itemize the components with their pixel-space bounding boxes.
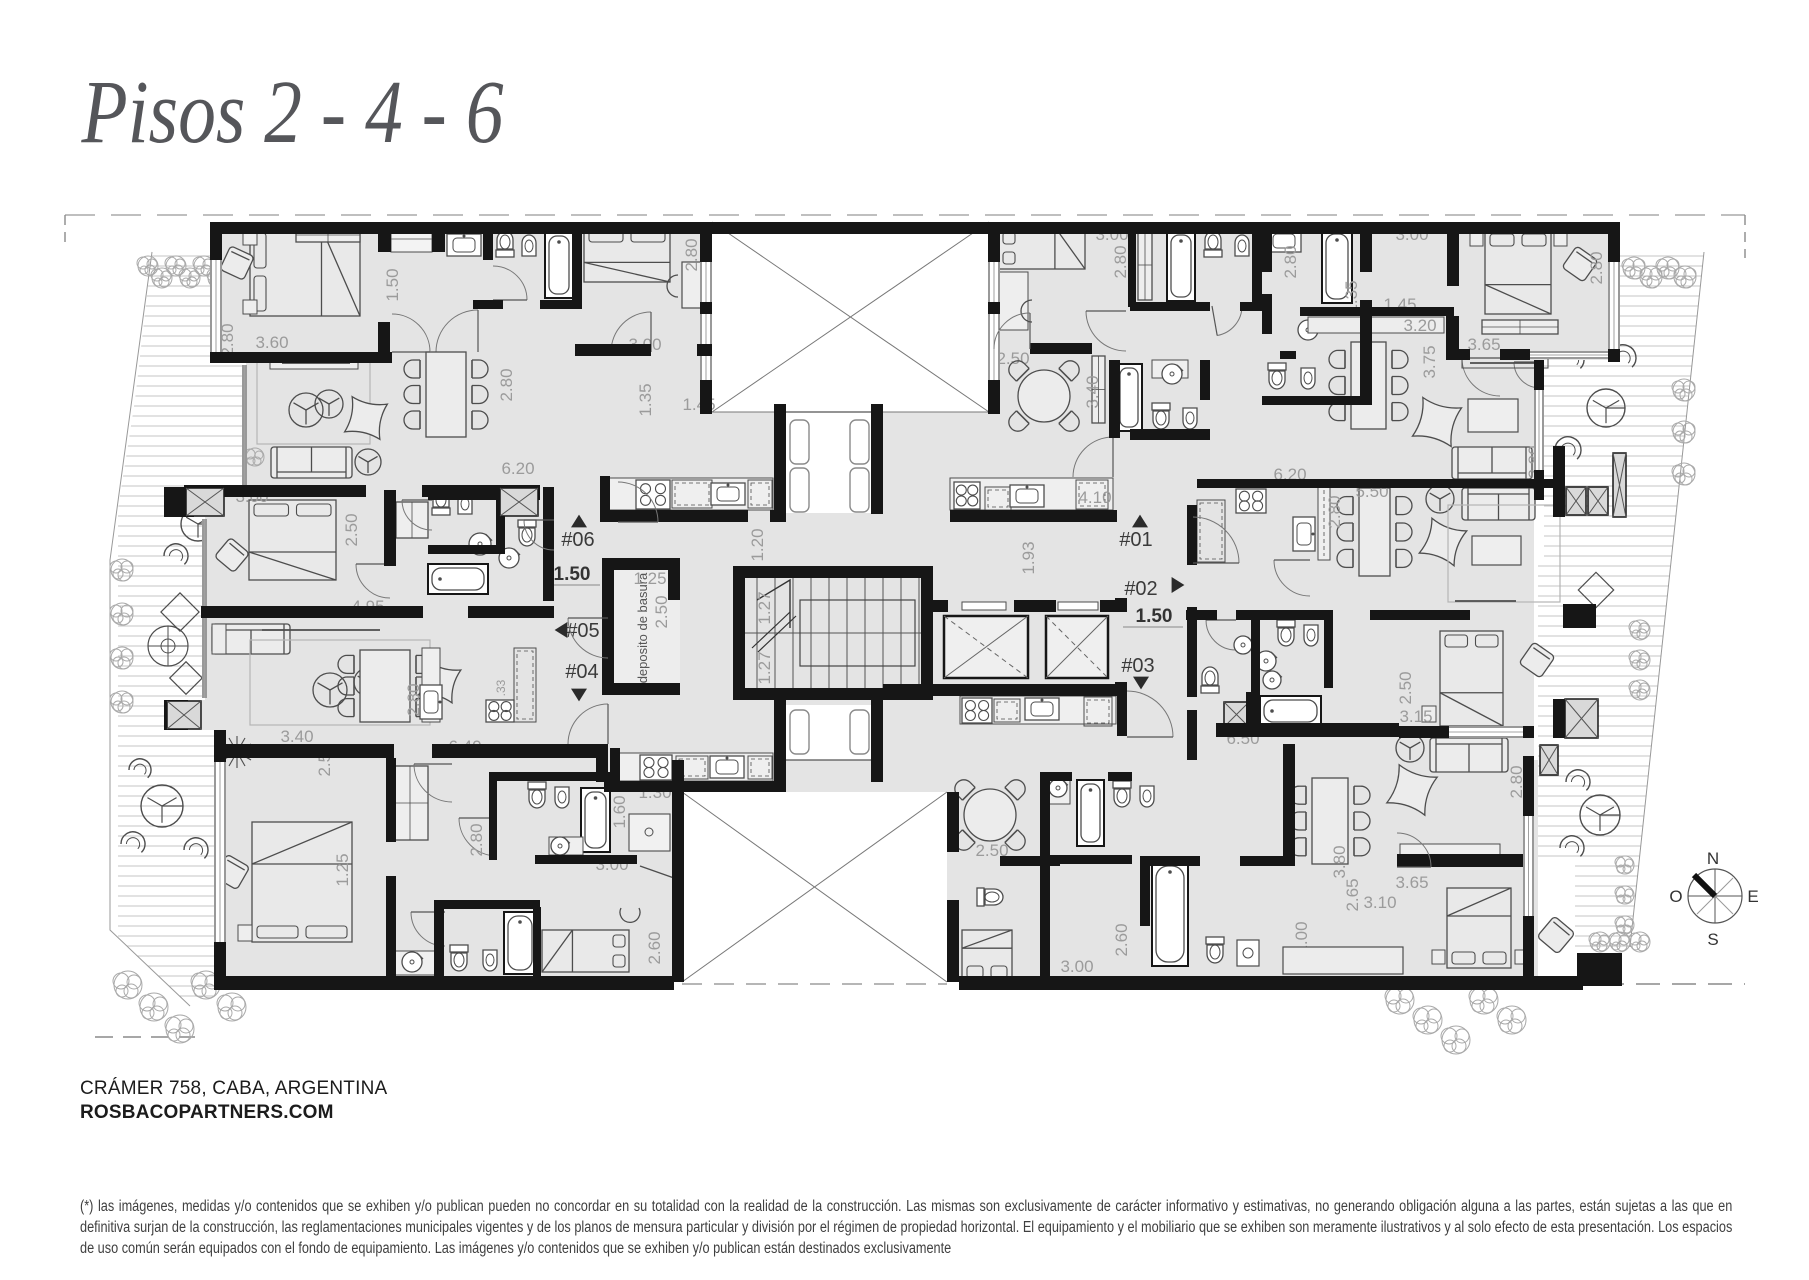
svg-text:#03: #03	[1121, 655, 1154, 677]
svg-text:2.80: 2.80	[682, 238, 701, 271]
svg-text:3.15: 3.15	[1399, 707, 1432, 726]
svg-text:Pisos 2 - 4 - 6: Pisos 2 - 4 - 6	[81, 62, 504, 162]
svg-text:N: N	[1707, 849, 1719, 868]
svg-text:O: O	[1669, 887, 1682, 906]
svg-text:2.65: 2.65	[1343, 878, 1362, 911]
svg-text:2.80: 2.80	[404, 683, 423, 716]
svg-text:1.25: 1.25	[333, 853, 352, 886]
svg-text:3.75: 3.75	[1420, 345, 1439, 378]
svg-text:1.60: 1.60	[610, 795, 629, 828]
svg-text:2.50: 2.50	[652, 595, 671, 628]
svg-text:E: E	[1747, 887, 1758, 906]
svg-text:1.20: 1.20	[748, 528, 767, 561]
svg-text:1.25: 1.25	[633, 569, 666, 588]
svg-text:2.50: 2.50	[1396, 671, 1415, 704]
svg-text:2.80: 2.80	[1281, 245, 1300, 278]
svg-text:2.80: 2.80	[467, 823, 486, 856]
svg-text:1.50: 1.50	[554, 564, 591, 585]
svg-text:3.65: 3.65	[1395, 873, 1428, 892]
svg-text:#04: #04	[565, 661, 598, 683]
svg-text:2.80: 2.80	[1587, 251, 1606, 284]
svg-text:#06: #06	[561, 529, 594, 551]
svg-text:1.50: 1.50	[383, 268, 402, 301]
svg-text:3.10: 3.10	[1363, 893, 1396, 912]
svg-text:2.80: 2.80	[1325, 495, 1344, 528]
svg-text:3.00: 3.00	[1060, 957, 1093, 976]
svg-text:1.27: 1.27	[755, 591, 774, 624]
svg-text:2.60: 2.60	[1112, 923, 1131, 956]
svg-text:1.93: 1.93	[1019, 541, 1038, 574]
svg-text:.33: .33	[494, 679, 508, 696]
svg-text:S: S	[1707, 930, 1718, 949]
svg-text:deposito de basura: deposito de basura	[635, 572, 650, 683]
svg-text:2.50: 2.50	[342, 513, 361, 546]
svg-text:3.40: 3.40	[1083, 375, 1102, 408]
svg-text:2.60: 2.60	[645, 931, 664, 964]
svg-text:3.40: 3.40	[280, 727, 313, 746]
svg-text:2.80: 2.80	[497, 368, 516, 401]
svg-text:6.20: 6.20	[501, 459, 534, 478]
svg-text:#02: #02	[1124, 578, 1157, 600]
svg-text:1.27: 1.27	[755, 651, 774, 684]
svg-text:3.80: 3.80	[1330, 845, 1349, 878]
svg-text:4.10: 4.10	[1078, 488, 1111, 507]
svg-text:#05: #05	[566, 620, 599, 642]
svg-text:1.35: 1.35	[636, 383, 655, 416]
svg-text:3.60: 3.60	[255, 333, 288, 352]
svg-text:1.50: 1.50	[1136, 606, 1173, 627]
svg-text:3.20: 3.20	[1403, 316, 1436, 335]
svg-text:3.65: 3.65	[1467, 335, 1500, 354]
svg-text:#01: #01	[1119, 529, 1152, 551]
svg-text:2.80: 2.80	[1111, 245, 1130, 278]
svg-text:2.50: 2.50	[996, 349, 1029, 368]
